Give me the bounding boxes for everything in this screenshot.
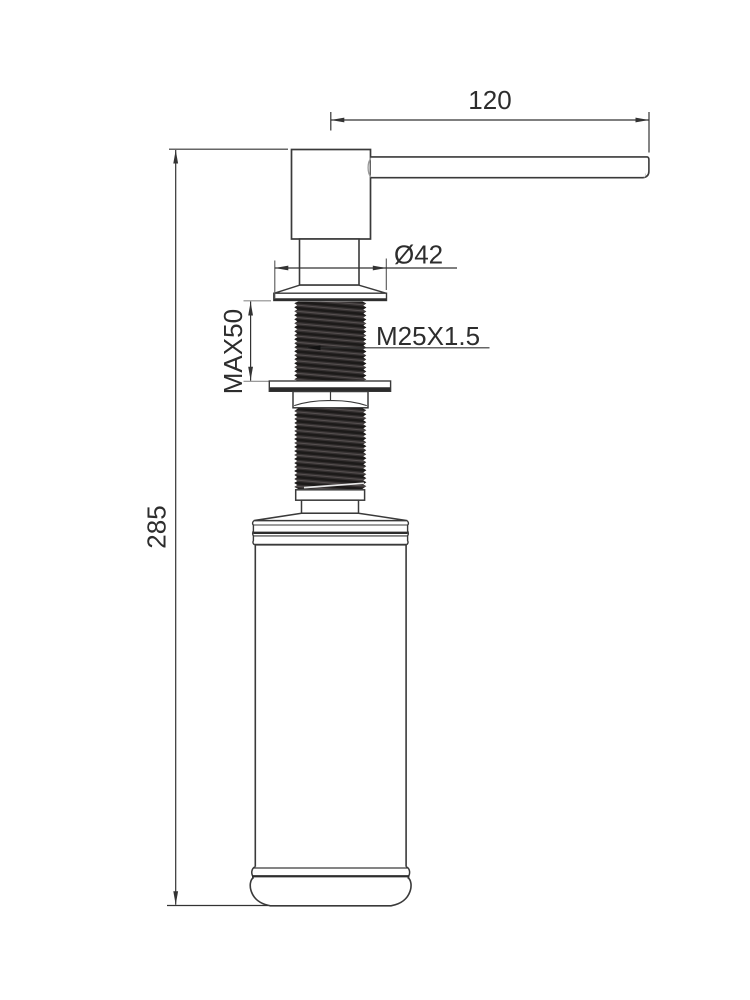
svg-text:M25X1.5: M25X1.5 [376,321,480,351]
svg-text:MAX50: MAX50 [218,309,248,394]
svg-text:285: 285 [142,505,172,548]
svg-text:120: 120 [468,85,511,115]
svg-text:Ø42: Ø42 [394,240,443,270]
